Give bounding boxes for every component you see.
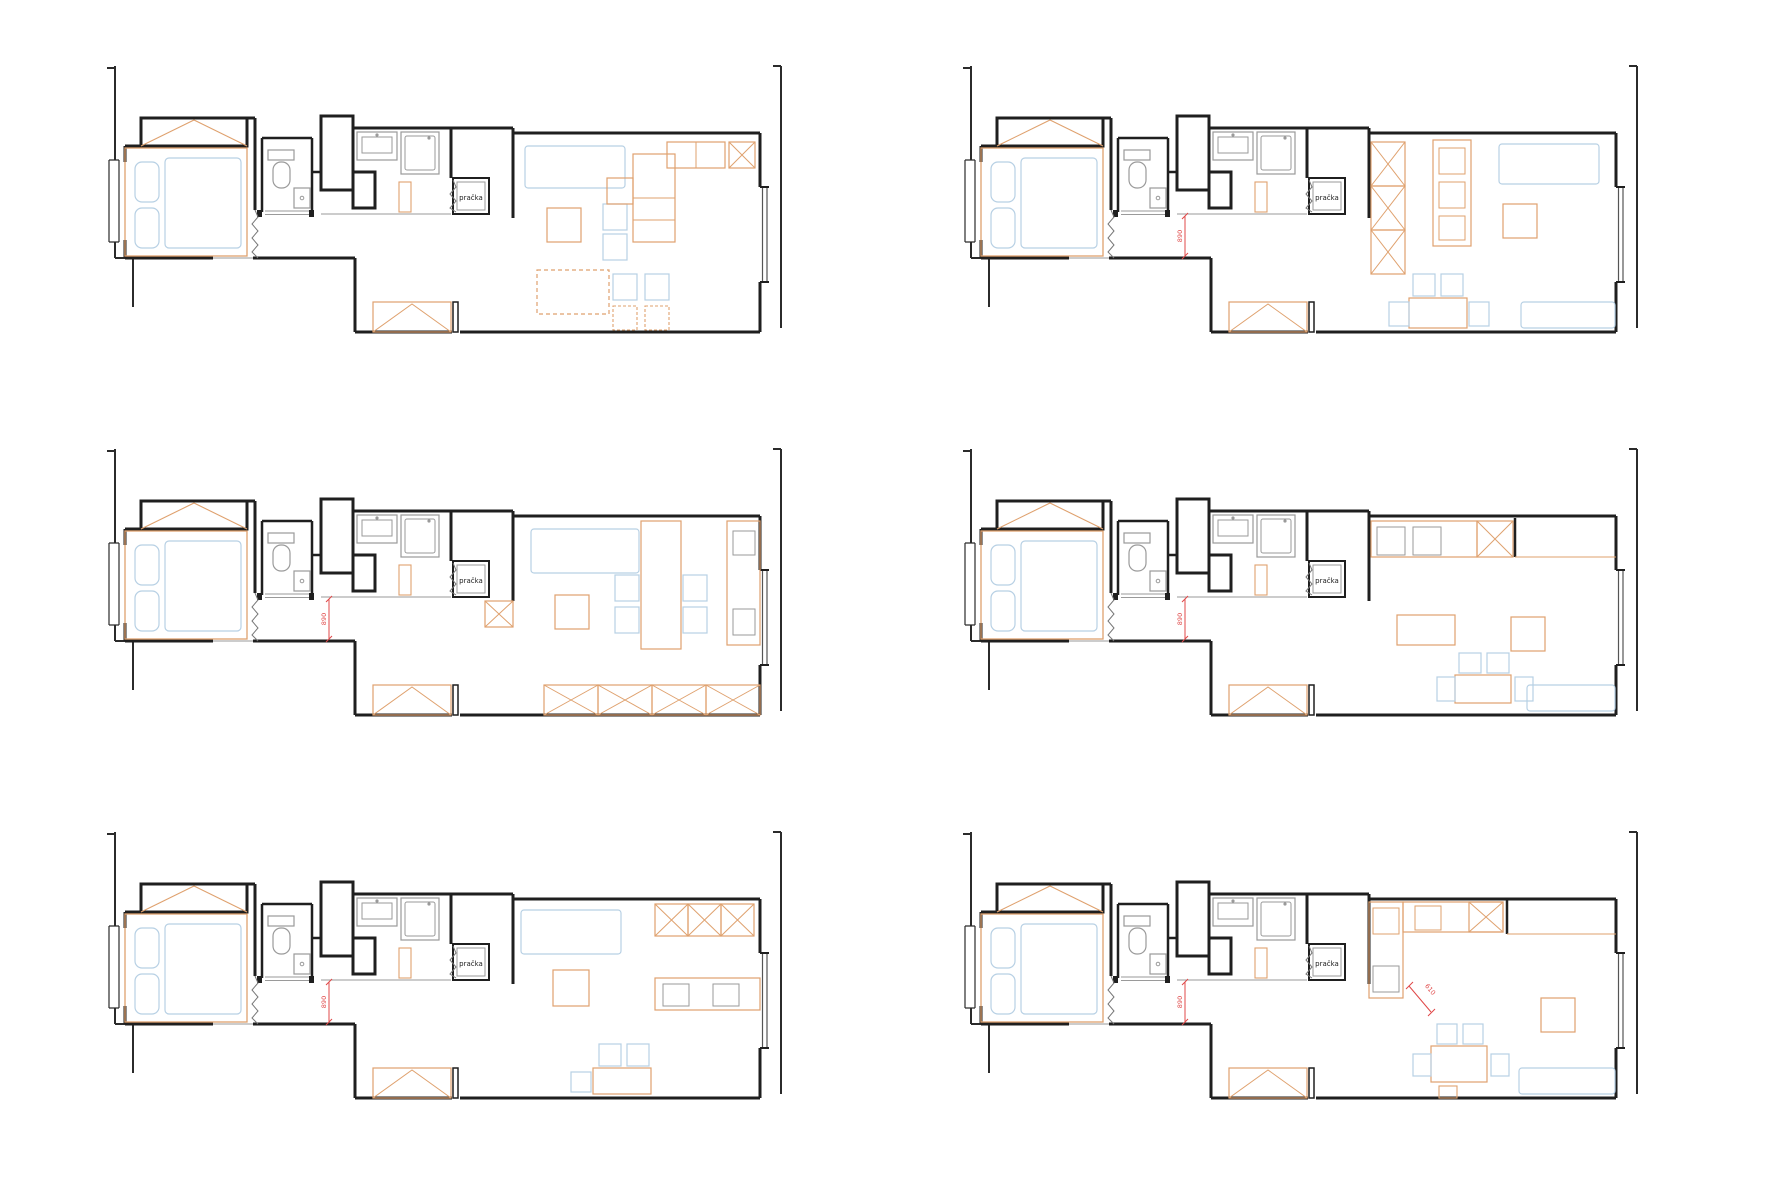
living-window [760, 570, 769, 665]
hall-closet-large [321, 882, 353, 956]
washbasin [294, 954, 310, 974]
lounge-sofa [1521, 302, 1615, 328]
floor-plan-variant-1: pračka [107, 62, 787, 334]
bed-canopy [997, 884, 1103, 912]
toilet [1124, 150, 1150, 188]
hall-dimension-890: 890 [1176, 979, 1188, 1025]
entry-door [453, 1068, 458, 1098]
curtain-zigzag [252, 976, 258, 1024]
entry-bench [373, 1068, 451, 1098]
entry-bench [1229, 302, 1307, 332]
svg-text:pračka: pračka [1315, 194, 1339, 202]
apartment-walls [125, 501, 760, 715]
planned-wardrobe-dashed [537, 270, 609, 314]
kitchen-sink [357, 515, 397, 543]
washer: pračka [1306, 178, 1345, 214]
hall-door-leaf [1255, 182, 1267, 212]
floor-plan-sheet: pračka pračka890 pračka890 pračka890 pra… [0, 0, 1774, 1200]
svg-text:890: 890 [320, 613, 328, 625]
top-wardrobes [655, 904, 754, 936]
kitchen-island [655, 978, 760, 1010]
toilet [268, 150, 294, 188]
svg-text:pračka: pračka [459, 960, 483, 968]
bay-window [109, 543, 119, 625]
hall-closet-large [1177, 499, 1209, 573]
washer: pračka [450, 178, 489, 214]
hall-door-leaf [399, 182, 411, 212]
coffee-table [1503, 204, 1537, 238]
dining-set [1437, 653, 1533, 703]
hall-dimension-890: 890 [320, 596, 332, 642]
curtain-zigzag [1108, 976, 1114, 1024]
kitchen-appliance [1257, 132, 1295, 174]
hall-dimension-890: 890 [1176, 213, 1188, 259]
hall-dimension-890: 890 [320, 979, 332, 1025]
context-walls [963, 832, 1637, 1094]
bedroom-bed [125, 148, 247, 256]
bathroom [1118, 521, 1177, 598]
bed-canopy [141, 884, 247, 912]
washer: pračka [1306, 561, 1345, 597]
coffee-table [1397, 615, 1455, 645]
kitchen-appliance [1257, 898, 1295, 940]
lounge-sofa [1527, 685, 1615, 711]
hall-closet-large [1177, 116, 1209, 190]
bay-window [965, 926, 975, 1008]
hall-closet-large [321, 116, 353, 190]
plan-drawing-6: pračka890610 [963, 828, 1643, 1100]
kitchen-appliance [1257, 515, 1295, 557]
tall-wardrobe [1371, 142, 1405, 274]
entry-bench [373, 685, 451, 715]
kitchen-counter [727, 521, 760, 645]
curtain-zigzag [1108, 210, 1114, 258]
floor-plan-variant-5: pračka890 [107, 828, 787, 1100]
corner-cabinet [729, 142, 755, 168]
side-table [607, 178, 633, 204]
washbasin [1150, 188, 1166, 208]
floor-plan-variant-2: pračka890 [963, 62, 1643, 334]
washbasin [1150, 571, 1166, 591]
coffee-table [1541, 998, 1575, 1032]
bedroom-bed [125, 914, 247, 1022]
kitchen-sink [1213, 132, 1253, 160]
context-walls [107, 66, 781, 328]
dining-set [613, 274, 669, 330]
bathroom [1118, 138, 1177, 215]
kitchen-sink [357, 132, 397, 160]
washbasin [1150, 954, 1166, 974]
living-window [1616, 187, 1625, 282]
curtain-zigzag [252, 593, 258, 641]
entry-bench [1229, 1068, 1307, 1098]
apartment-walls [981, 118, 1616, 332]
toilet [1124, 916, 1150, 954]
living-window [1616, 953, 1625, 1048]
svg-text:890: 890 [1176, 230, 1184, 242]
kitchen-sink [1213, 515, 1253, 543]
svg-text:890: 890 [320, 996, 328, 1008]
bedroom-bed [981, 914, 1103, 1022]
curtain-zigzag [1108, 593, 1114, 641]
bed-canopy [997, 118, 1103, 146]
desk-cabinet [633, 154, 675, 242]
bay-window [965, 160, 975, 242]
entry-door [1309, 685, 1314, 715]
apartment-walls [125, 884, 760, 1098]
plan-drawing-1: pračka [107, 62, 787, 334]
kitchen-island [1433, 140, 1471, 246]
entry-door [1309, 302, 1314, 332]
living-window [760, 953, 769, 1048]
coffee-table [555, 595, 589, 629]
hall-closet-small [1209, 938, 1231, 974]
sofa [1499, 144, 1599, 184]
dining-set [1413, 1024, 1509, 1098]
hall-door-leaf [399, 565, 411, 595]
bedroom-bed [125, 531, 247, 639]
plan-drawing-4: pračka890 [963, 445, 1643, 717]
bathroom [262, 904, 321, 981]
context-walls [107, 449, 781, 711]
svg-text:pračka: pračka [1315, 960, 1339, 968]
floor-plan-variant-3: pračka890 [107, 445, 787, 717]
bathroom [262, 521, 321, 598]
hall-closet-small [353, 938, 375, 974]
sofa [525, 146, 625, 188]
hall-closet-small [353, 172, 375, 208]
sofa [521, 910, 621, 954]
kitchen-appliance [401, 898, 439, 940]
context-walls [107, 832, 781, 1094]
toilet [268, 533, 294, 571]
living-window [760, 187, 769, 282]
plan-drawing-2: pračka890 [963, 62, 1643, 334]
hall-closet-small [1209, 555, 1231, 591]
apartment-walls [981, 884, 1616, 1098]
bay-window [109, 160, 119, 242]
wall-cabinet [667, 142, 725, 168]
svg-text:pračka: pračka [459, 194, 483, 202]
bedroom-bed [981, 148, 1103, 256]
floor-plan-variant-4: pračka890 [963, 445, 1643, 717]
sofa [531, 529, 639, 573]
dining-set [615, 521, 707, 649]
coffee-table [553, 970, 589, 1006]
coffee-table [547, 208, 581, 242]
bay-window [965, 543, 975, 625]
svg-text:pračka: pračka [459, 577, 483, 585]
side-seats [603, 204, 627, 260]
bathroom [262, 138, 321, 215]
bed-canopy [141, 501, 247, 529]
entry-door [1309, 1068, 1314, 1098]
bed-canopy [997, 501, 1103, 529]
entry-door [453, 685, 458, 715]
washbasin [294, 571, 310, 591]
context-walls [963, 449, 1637, 711]
hall-door-leaf [399, 948, 411, 978]
kitchen-appliance [401, 515, 439, 557]
washer: pračka [450, 944, 489, 980]
hall-dimension-890: 890 [1176, 596, 1188, 642]
hall-closet-large [321, 499, 353, 573]
toilet [1124, 533, 1150, 571]
apartment-walls [981, 501, 1616, 715]
lounge-sofa [1519, 1068, 1615, 1094]
plan-drawing-5: pračka890 [107, 828, 787, 1100]
toilet [268, 916, 294, 954]
dining-set [1389, 274, 1489, 328]
bay-window [109, 926, 119, 1008]
svg-text:pračka: pračka [1315, 577, 1339, 585]
svg-text:610: 610 [1423, 982, 1437, 997]
side-table [1511, 617, 1545, 651]
washbasin [294, 188, 310, 208]
curtain-zigzag [252, 210, 258, 258]
dining-set [571, 1044, 651, 1094]
bed-canopy [141, 118, 247, 146]
hall-closet-small [353, 555, 375, 591]
partition-wall [1515, 518, 1616, 557]
svg-text:890: 890 [1176, 996, 1184, 1008]
plan-drawing-3: pračka890 [107, 445, 787, 717]
svg-text:890: 890 [1176, 613, 1184, 625]
living-window [1616, 570, 1625, 665]
entry-bench [1229, 685, 1307, 715]
dimension-610: 610 [1406, 982, 1437, 1016]
bedroom-bed [981, 531, 1103, 639]
floor-plan-variant-6: pračka890610 [963, 828, 1643, 1100]
kitchen-counter [1371, 521, 1513, 557]
entry-cabinet [485, 601, 513, 627]
washer: pračka [450, 561, 489, 597]
bottom-wardrobes [544, 685, 760, 715]
kitchen-L [1369, 902, 1503, 998]
entry-bench [373, 302, 451, 332]
entry-door [453, 302, 458, 332]
hall-door-leaf [1255, 948, 1267, 978]
hall-closet-large [1177, 882, 1209, 956]
washer: pračka [1306, 944, 1345, 980]
kitchen-sink [357, 898, 397, 926]
kitchen-appliance [401, 132, 439, 174]
hall-closet-small [1209, 172, 1231, 208]
hall-door-leaf [1255, 565, 1267, 595]
partition-wall [1507, 899, 1616, 934]
bathroom [1118, 904, 1177, 981]
kitchen-sink [1213, 898, 1253, 926]
context-walls [963, 66, 1637, 328]
